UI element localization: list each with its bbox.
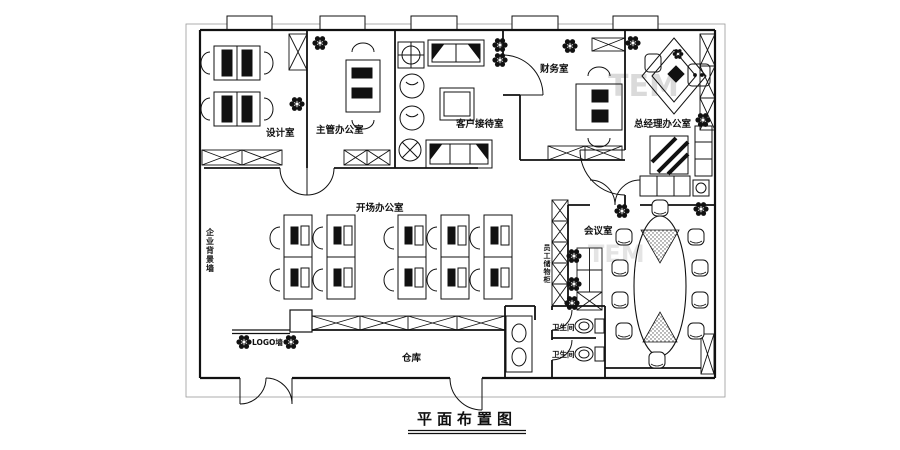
meeting-room-label: 会议室 [584, 225, 613, 237]
plant-icon [236, 335, 251, 349]
open-office-label: 开场办公室 [356, 202, 404, 214]
plant-icon [562, 39, 577, 53]
logo-wall-line [232, 330, 290, 334]
window-icon [411, 16, 457, 30]
corporate-background-wall-label: 企业背景墙 [205, 227, 215, 273]
window-icon [613, 16, 658, 30]
entrance-door-right [266, 378, 292, 404]
meeting-room-furniture [612, 200, 708, 368]
design-room-label: 设计室 [266, 127, 295, 139]
toilet-2-label: 卫生间 [552, 349, 575, 359]
window-icon [512, 16, 558, 30]
plant-icon [614, 204, 629, 218]
office-doors [280, 168, 334, 195]
window-group [227, 16, 658, 30]
finance-room-label: 财务室 [539, 63, 569, 75]
staff-lockers-label: 员工储物柜 [543, 243, 552, 284]
reception-room-label: 客户接待室 [455, 118, 504, 130]
warehouse-door [450, 378, 482, 410]
plant-icon [312, 36, 327, 50]
window-icon [320, 16, 365, 30]
warehouse-shelf [312, 316, 505, 330]
supervisor-room-label: 主管办公室 [316, 124, 364, 136]
gm-door [580, 150, 625, 195]
open-office-workstations [270, 215, 512, 299]
logo-wall-label: LOGO墙 [252, 337, 283, 347]
column [290, 310, 312, 332]
supervisor-furniture [346, 43, 380, 129]
plant-icon [625, 36, 640, 50]
plant-icon [283, 335, 298, 349]
meeting-double-door [590, 180, 640, 205]
drawing-title: 平面布置图 [408, 410, 526, 434]
design-room-furniture [201, 46, 273, 126]
floor-plan-canvas: TEM TEM [0, 0, 900, 450]
gm-room-label: 总经理办公室 [634, 118, 692, 130]
entrance-door-left [240, 378, 266, 404]
reception-furniture [398, 40, 492, 168]
plant-icon [289, 97, 304, 111]
window-icon [227, 16, 272, 30]
warehouse-label: 仓库 [401, 352, 422, 364]
drawing-title-text: 平面布置图 [417, 410, 517, 428]
floor-plan-page: TEM TEM [0, 0, 900, 450]
toilet-1-label: 卫生间 [552, 322, 575, 332]
plant-icon [492, 38, 507, 52]
title-underline [408, 431, 526, 434]
finance-door [503, 55, 543, 95]
